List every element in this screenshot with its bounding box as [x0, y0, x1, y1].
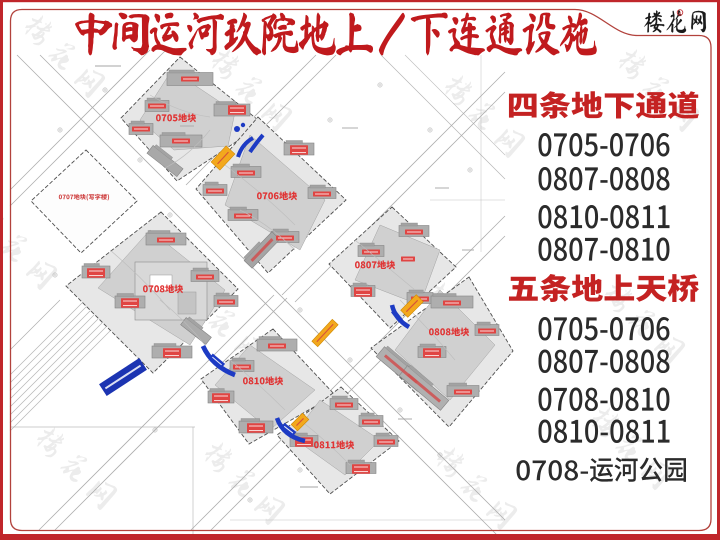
svg-text:R: R — [679, 10, 682, 15]
